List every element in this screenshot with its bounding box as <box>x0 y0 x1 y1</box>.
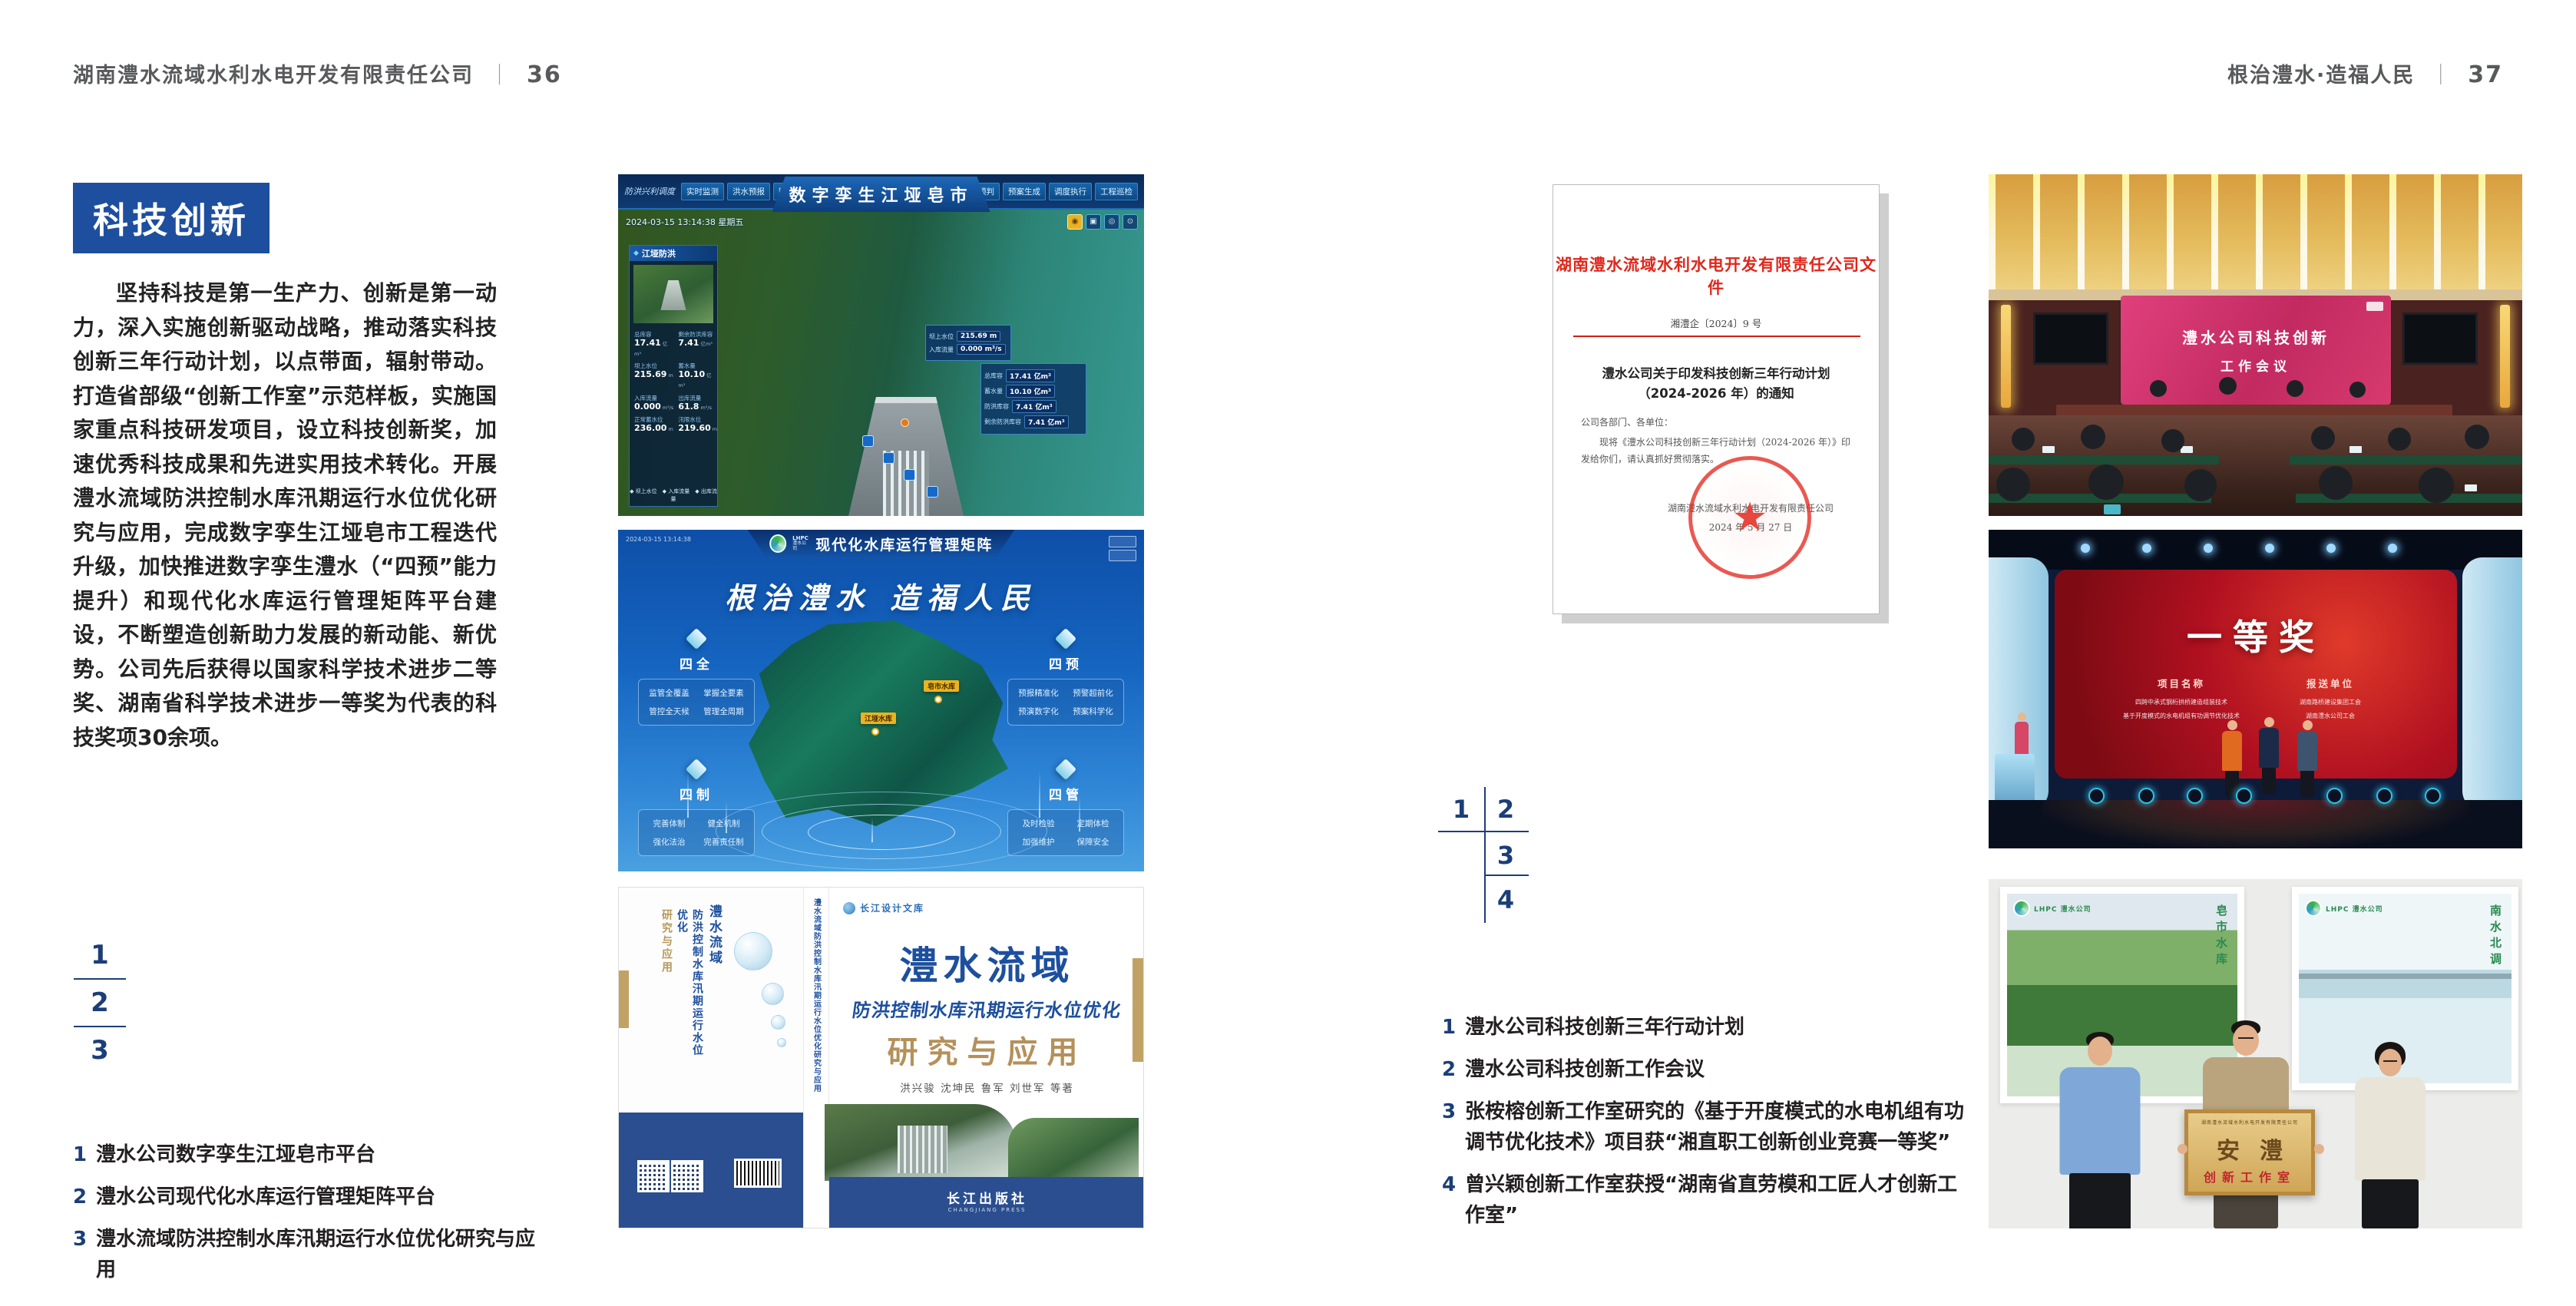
dam-crest <box>871 397 941 403</box>
left-header-title: 湖南澧水流域水利水电开发有限责任公司 <box>73 64 474 88</box>
reservoir-info-panel: ◆江垭防洪 总库容17.41亿m³ 剩余防洪库容7.41亿m³ 坝上水位215.… <box>629 245 718 507</box>
spine-title: 澧水流域防洪控制水库汛期运行水位优化研究与应用 <box>811 898 822 1129</box>
module-label: 防洪兴利调度 <box>624 185 675 197</box>
caption-text: 澧水公司数字孪生江垭皂市平台 <box>96 1139 549 1170</box>
audience-member <box>2161 429 2184 449</box>
back-cover-vertical-title: 澧水流域 防洪控制水库汛期运行水位优化 研究与应用 <box>659 904 724 1058</box>
floor-light-fixture <box>2236 788 2252 804</box>
book-front-cover: 长江设计文库 澧水流域 防洪控制水库汛期运行水位优化 研究与应用 洪兴骏 沈坤民… <box>829 888 1144 1228</box>
body-paragraph: 坚持科技是第一生产力、创新是第一动力，深入实施创新驱动战略，推动落实科技创新三年… <box>73 276 497 755</box>
tab-realtime-monitoring: 实时监测 <box>681 183 724 200</box>
front-cover-blue-band: 长江出版社 CHANGJIANG PRESS <box>829 1177 1144 1228</box>
project-item: 基于开度模式的水电机组有功调节优化技术 <box>2101 712 2262 720</box>
caption-number: 2 <box>1442 1054 1465 1085</box>
poster-caption: 南水北调 <box>2488 904 2504 969</box>
wall-tv-screen <box>2033 312 2108 365</box>
floating-data-panel: 总库容17.41 亿m³ 蓄水量10.10 亿m³ 防洪库容7.41 亿m³ 剩… <box>980 363 1086 435</box>
key-divider <box>74 1026 126 1027</box>
dashboard-toolbar: ◉ ▣ ◎ ⊙ <box>1067 214 1138 230</box>
glasses-icon <box>2383 1060 2397 1062</box>
floor-reflection <box>2042 800 2469 848</box>
light-pillar <box>1039 772 1040 818</box>
water-bubble <box>734 932 772 970</box>
document-red-header: 湖南澧水流域水利水电开发有限责任公司文件 <box>1553 253 1879 299</box>
panelist <box>2287 380 2303 394</box>
stat-cell: 坝上水位215.69m <box>634 362 673 389</box>
award-title: 一等奖 <box>2055 610 2457 660</box>
award-winner <box>2219 720 2245 797</box>
face <box>2088 1037 2112 1066</box>
institution-icon <box>686 759 707 780</box>
menu-button <box>1109 550 1136 561</box>
matrix-header-bar: LHPC澧水公司 现代化水库运行管理矩阵 <box>748 530 1015 557</box>
tab-plan-generation: 预案生成 <box>1003 183 1046 200</box>
figure-key-4: 4 <box>1493 888 1519 912</box>
audience-member <box>2311 426 2335 447</box>
matrix-timestamp: 2024-03-15 13:14:38 <box>626 536 691 543</box>
key-grid-line <box>1484 787 1486 923</box>
audience-member <box>1996 468 2030 498</box>
project-name-column: 项目名称 四跨中承式钢桁拱桥建造组装技术 基于开度模式的水电机组有功调节优化技术 <box>2101 676 2262 726</box>
page-number-left: 36 <box>527 61 562 88</box>
lhpc-logo: LHPC 澧水公司 <box>2013 900 2092 917</box>
figure-award-stage-photo: 一等奖 项目名称 四跨中承式钢桁拱桥建造组装技术 基于开度模式的水电机组有功调节… <box>1989 530 2522 848</box>
panelist <box>2219 377 2237 392</box>
user-icon: ◉ <box>1067 214 1083 230</box>
seal-star-icon: ★ <box>1732 498 1768 537</box>
fullscreen-button <box>1109 536 1136 547</box>
tab-flood-forecast: 洪水预报 <box>727 183 770 200</box>
locate-icon: ◎ <box>1104 214 1119 230</box>
screen-title-line2: 工作会议 <box>2221 355 2291 375</box>
figure-digital-twin-dashboard: 防洪兴利调度 实时监测 洪水预报 防洪预警 数字孪生江垭皂市 风险预判 预案生成… <box>618 174 1144 516</box>
caption-number: 1 <box>1442 1012 1465 1043</box>
panel-header: ◆江垭防洪 <box>630 246 717 261</box>
notice-title-line1: 澧水公司关于印发科技创新三年行动计划 <box>1553 363 1879 382</box>
white-top <box>2355 1077 2426 1181</box>
matrix-title: 现代化水库运行管理矩阵 <box>815 534 993 554</box>
face <box>2379 1049 2402 1076</box>
figure-matrix-platform: 2024-03-15 13:14:38 LHPC澧水公司 现代化水库运行管理矩阵… <box>618 530 1144 871</box>
publisher-logo: 长江出版社 CHANGJIANG PRESS <box>829 1188 1144 1213</box>
red-divider-line <box>1573 336 1860 337</box>
book-back-cover: 澧水流域 防洪控制水库汛期运行水位优化 研究与应用 <box>619 888 803 1228</box>
wall-lamp <box>2001 305 2011 408</box>
thumbnail-dam-shape <box>660 280 686 311</box>
matrix-panel-siyu: 四预 预报精准化预警超前化 预演数字化预案科学化 <box>1007 631 1124 726</box>
forecast-icon <box>1055 628 1076 650</box>
stat-cell: 总库容17.41亿m³ <box>634 330 673 358</box>
paper-item <box>2042 446 2055 453</box>
official-document: 湖南澧水流域水利水电开发有限责任公司文件 湘澧企〔2024〕9 号 澧水公司关于… <box>1553 184 1880 614</box>
tab-dispatch-execution: 调度执行 <box>1049 183 1092 200</box>
data-row: 蓄水量10.10 亿m³ <box>984 385 1083 398</box>
reservoir-stats-grid: 总库容17.41亿m³ 剩余防洪库容7.41亿m³ 坝上水位215.69m 蓄水… <box>630 327 717 437</box>
data-row: 剩余防洪库容7.41 亿m³ <box>984 415 1083 428</box>
blue-polo-shirt <box>2060 1067 2141 1175</box>
stat-cell: 剩余防洪库容7.41亿m³ <box>678 330 717 358</box>
water-bubble <box>771 1015 785 1030</box>
stage-light-icon <box>2265 544 2274 553</box>
floor-light-fixture <box>2425 788 2441 804</box>
qr-code <box>637 1160 670 1192</box>
header-divider: ｜ <box>2430 64 2452 88</box>
tan-accent-block <box>619 970 629 1028</box>
figure-key-3: 3 <box>74 1037 126 1063</box>
paper-item <box>2349 446 2362 453</box>
figure-meeting-photo: 澧水公司科技创新 工作会议 <box>1989 174 2522 516</box>
series-logo: 长江设计文库 <box>843 901 924 914</box>
wall-tv-screen <box>2402 312 2478 365</box>
figure-plaque-group-photo: LHPC 澧水公司 皂市水库 LHPC 澧水公司 南水北调 <box>1989 879 2522 1228</box>
left-wall-panel <box>1989 300 2119 415</box>
panelist <box>2349 382 2366 395</box>
screen-title-line1: 澧水公司科技创新 <box>2182 326 2330 348</box>
figure-key-2: 2 <box>1493 797 1519 822</box>
matrix-panel-siquan: 四全 监管全覆盖掌握全要素 管控全天候管理全周期 <box>638 631 755 726</box>
qr-code <box>671 1160 703 1192</box>
stage-light-icon <box>2388 544 2397 553</box>
floor-light-fixture <box>2376 788 2392 804</box>
left-page-header: 湖南澧水流域水利水电开发有限责任公司｜36 <box>73 58 562 88</box>
data-row: 坝上水位215.69 m <box>929 331 1007 342</box>
panel-header-icon: ◆ <box>633 250 639 257</box>
chart-legend: ◆ 坝上水位 ◆ 入库流量 ◆ 出库流量 <box>630 488 717 503</box>
caption-item: 2澧水公司科技创新工作会议 <box>1442 1054 1972 1085</box>
stage-light-icon <box>2081 544 2090 553</box>
audience-member <box>2419 468 2454 500</box>
stat-cell: 蓄水量10.10亿m³ <box>678 362 717 389</box>
header-divider: ｜ <box>489 64 511 88</box>
data-row: 入库流量0.000 m³/s <box>929 344 1007 355</box>
gate-pin-icon <box>904 469 915 481</box>
column-header: 项目名称 <box>2101 676 2262 690</box>
wall-lamp <box>2500 305 2510 408</box>
person-left <box>2058 1037 2142 1228</box>
audience-member <box>2081 425 2105 446</box>
plaque-title: 安澧 <box>2188 1132 2311 1165</box>
tab-project-inspection: 工程巡检 <box>1095 183 1138 200</box>
caption-number: 4 <box>1442 1169 1465 1231</box>
map-dot <box>934 696 942 703</box>
document-number: 湘澧企〔2024〕9 号 <box>1553 316 1879 330</box>
panel-items: 预报精准化预警超前化 预演数字化预案科学化 <box>1007 679 1124 726</box>
lhpc-logo: LHPC 澧水公司 <box>2305 900 2383 917</box>
audience-member <box>2388 428 2411 448</box>
floor-light-fixture <box>2088 788 2105 804</box>
stage-truss <box>1989 530 2522 570</box>
lhpc-logo-icon <box>2305 900 2322 917</box>
caption-text: 张桉榕创新工作室研究的《基于开度模式的水电机组有功调节优化技术》项目获“湘直职工… <box>1465 1096 1972 1158</box>
dashboard-nav-bar: 防洪兴利调度 实时监测 洪水预报 防洪预警 数字孪生江垭皂市 风险预判 预案生成… <box>618 174 1144 210</box>
map-tag-zaoshi: 皂市水库 <box>924 680 959 692</box>
isbn-barcode <box>734 1159 782 1188</box>
caption-text: 澧水公司科技创新三年行动计划 <box>1465 1012 1972 1043</box>
book-title-sub: 防洪控制水库汛期运行水位优化 <box>828 995 1144 1022</box>
unit-item: 湖南路桥建设集团工会 <box>2250 698 2411 706</box>
panel-items: 监管全覆盖掌握全要素 管控全天候管理全周期 <box>638 679 755 726</box>
slogan-calligraphy: 根治澧水 造福人民 <box>618 574 1144 617</box>
data-row: 防洪库容7.41 亿m³ <box>984 400 1083 413</box>
book-authors: 洪兴骏 沈坤民 鲁军 刘世军 等著 <box>829 1080 1144 1095</box>
figure-captions-left: 1澧水公司数字孪生江垭皂市平台 2澧水公司现代化水库运行管理矩阵平台 3澧水流域… <box>73 1139 549 1297</box>
caption-number: 2 <box>73 1182 96 1212</box>
key-divider <box>74 978 126 980</box>
compass-icon: ⊙ <box>1123 214 1138 230</box>
column-header: 报送单位 <box>2250 676 2411 690</box>
light-pillar <box>871 818 873 842</box>
lhpc-logo-icon <box>2013 900 2030 917</box>
right-page-header: 根治澧水·造福人民｜37 <box>2227 58 2503 88</box>
maintenance-icon <box>1055 759 1076 780</box>
caption-item: 3张桉榕创新工作室研究的《基于开度模式的水电机组有功调节优化技术》项目获“湘直职… <box>1442 1096 1972 1158</box>
caption-text: 澧水流域防洪控制水库汛期运行水位优化研究与应用 <box>96 1224 549 1285</box>
lhpc-logo-icon <box>769 534 786 553</box>
caption-item: 4曾兴颖创新工作室获授“湖南省直劳模和工匠人才创新工作室” <box>1442 1169 1972 1231</box>
hand <box>2314 1144 2324 1154</box>
screen-logo-chip <box>2366 302 2383 311</box>
ceiling-lights <box>1989 174 2522 297</box>
dam-spill-shape <box>898 1126 947 1173</box>
floor-light-fixture <box>2138 788 2154 804</box>
stage-light-icon <box>2326 544 2336 553</box>
floor-light-fixture <box>2187 788 2203 804</box>
panelist <box>2150 380 2167 394</box>
water-bubble <box>762 983 784 1005</box>
panel-title: 四全 <box>638 653 755 673</box>
panel-title: 四预 <box>1007 653 1124 673</box>
key-grid-line <box>1438 831 1529 832</box>
audience-table <box>2290 455 2522 465</box>
official-red-seal: ★ <box>1688 456 1811 579</box>
light-pillar <box>1079 797 1080 832</box>
caption-number: 3 <box>73 1224 96 1285</box>
caption-text: 澧水公司现代化水库运行管理矩阵平台 <box>96 1182 549 1212</box>
audience-member <box>2184 469 2217 498</box>
section-title-badge: 科技创新 <box>73 183 270 253</box>
key-grid-line <box>1485 875 1529 876</box>
figure-key-2: 2 <box>74 990 126 1016</box>
audience-member <box>2465 425 2489 446</box>
audience-member <box>2088 465 2124 497</box>
right-wall-panel <box>2392 300 2522 415</box>
caption-item: 1澧水公司科技创新三年行动计划 <box>1442 1012 1972 1043</box>
figure-key-3: 3 <box>1493 843 1519 868</box>
caption-number: 1 <box>73 1139 96 1170</box>
ripple-ring <box>808 815 955 850</box>
glasses-icon <box>2238 1037 2254 1039</box>
plaque-subtitle: 创新工作室 <box>2188 1167 2311 1185</box>
water-bubble <box>777 1038 786 1047</box>
right-header-title: 根治澧水·造福人民 <box>2227 64 2415 88</box>
trousers <box>2069 1173 2131 1228</box>
panel-title: 江垭防洪 <box>642 247 676 260</box>
light-pillar <box>726 801 727 833</box>
light-pillar <box>687 772 689 818</box>
back-cover-blue-band <box>619 1113 803 1228</box>
caption-text: 澧水公司科技创新工作会议 <box>1465 1054 1972 1085</box>
person-right <box>2349 1046 2430 1228</box>
caption-item: 3澧水流域防洪控制水库汛期运行水位优化研究与应用 <box>73 1224 549 1285</box>
magazine-spread: 湖南澧水流域水利水电开发有限责任公司｜36 根治澧水·造福人民｜37 科技创新 … <box>0 0 2576 1306</box>
book-title-main: 澧水流域 <box>829 935 1144 990</box>
caption-text: 曾兴颖创新工作室获授“湖南省直劳模和工匠人才创新工作室” <box>1465 1169 1972 1231</box>
audience-member <box>2319 466 2353 497</box>
caption-number: 3 <box>1442 1096 1465 1158</box>
layers-icon: ▣ <box>1086 214 1101 230</box>
worker-marker-icon <box>901 418 909 427</box>
trousers <box>2362 1179 2419 1228</box>
stage-side-panel <box>2462 557 2522 811</box>
panel-title: 四管 <box>1007 784 1124 803</box>
lhpc-logo-text: LHPC澧水公司 <box>792 536 809 552</box>
dam-aerial-thumbnail <box>633 265 713 323</box>
dashboard-timestamp: 2024-03-15 13:14:38 星期五 <box>626 216 743 228</box>
paper-item <box>2465 484 2477 491</box>
document-salutation: 公司各部门、各单位： <box>1581 415 1673 428</box>
gate-pin-icon <box>927 486 938 498</box>
stage-light-icon <box>2142 544 2151 553</box>
notice-title-line2: （2024-2026 年）的通知 <box>1553 383 1879 402</box>
award-winner <box>2294 720 2320 797</box>
stat-cell: 入库流量0.000m³/s <box>634 394 673 412</box>
book-title-tail: 研究与应用 <box>829 1027 1144 1072</box>
face <box>2233 1025 2259 1056</box>
stat-cell: 汛限水位219.60m <box>678 415 717 434</box>
stat-cell: 正常蓄水位236.00m <box>634 415 673 434</box>
stage-light-icon <box>2204 544 2213 553</box>
gate-pin-icon <box>883 452 894 464</box>
floor-light-fixture <box>2326 788 2343 804</box>
bridge-shape <box>2299 974 2512 979</box>
document-body-line: 发给你们，请认真抓好贯彻落实。 <box>1581 452 1719 465</box>
dashboard-title: 数字孪生江垭皂市 <box>772 177 990 212</box>
presenter <box>2256 717 2282 794</box>
audience-table <box>1989 455 2219 465</box>
series-logo-icon <box>843 902 855 914</box>
hand <box>2178 1144 2187 1154</box>
audience-member <box>2012 428 2035 448</box>
poster-caption: 皂市水库 <box>2214 904 2230 969</box>
gate-pin-icon <box>862 435 874 447</box>
plaque-header: 湖南澧水流域水利水电开发有限责任公司 <box>2188 1119 2311 1126</box>
map-dot <box>871 728 879 736</box>
innovation-studio-plaque: 湖南澧水流域水利水电开发有限责任公司 安澧 创新工作室 <box>2184 1109 2315 1195</box>
figure-key-1: 1 <box>1448 797 1474 822</box>
floating-data-panel: 坝上水位215.69 m 入库流量0.000 m³/s <box>925 325 1011 361</box>
project-item: 四跨中承式钢桁拱桥建造组装技术 <box>2101 698 2262 706</box>
map-tag-jiangya: 江垭水库 <box>861 713 896 724</box>
page-number-right: 37 <box>2468 61 2503 88</box>
caption-item: 1澧水公司数字孪生江垭皂市平台 <box>73 1139 549 1170</box>
panel-title: 四制 <box>638 784 755 803</box>
figure-book-cover: 澧水流域 防洪控制水库汛期运行水位优化 研究与应用 澧水流域防洪控制水库汛期运行… <box>618 887 1144 1228</box>
figure-key-left: 1 2 3 <box>74 938 126 1067</box>
dam-photo <box>825 1104 1017 1181</box>
figure-captions-right: 1澧水公司科技创新三年行动计划 2澧水公司科技创新工作会议 3张桉榕创新工作室研… <box>1442 1012 1972 1242</box>
tissue-box <box>2104 504 2121 514</box>
document-body-line: 现将《澧水公司科技创新三年行动计划（2024-2026 年）》印 <box>1581 435 1857 448</box>
tan-accent-block <box>1133 958 1144 1062</box>
stage-floor <box>1989 800 2522 848</box>
monitor-icon <box>686 628 707 650</box>
stat-cell: 出库流量61.8m³/s <box>678 394 717 412</box>
caption-item: 2澧水公司现代化水库运行管理矩阵平台 <box>73 1182 549 1212</box>
figure-key-1: 1 <box>74 942 126 968</box>
data-row: 总库容17.41 亿m³ <box>984 369 1083 382</box>
